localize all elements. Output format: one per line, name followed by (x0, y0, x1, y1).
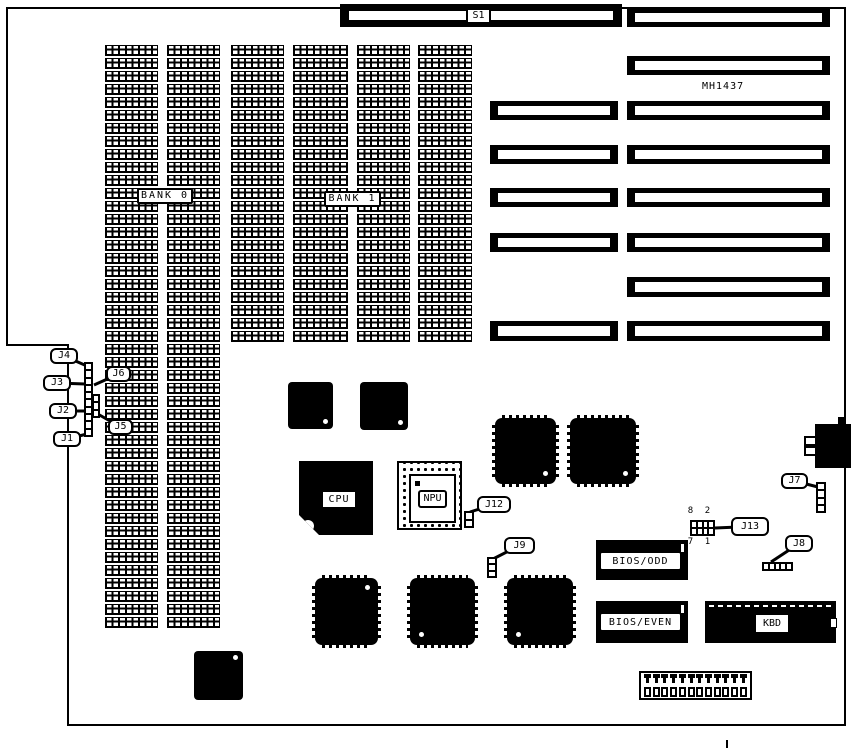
memory-dip-chip (418, 292, 472, 303)
jumper-cell (818, 484, 824, 489)
memory-dip-chip (167, 448, 220, 459)
keyboard-din-connector (815, 424, 851, 468)
jumper-cell (86, 364, 91, 369)
memory-dip-chip (357, 305, 410, 316)
memory-dip-chip (105, 500, 158, 511)
memory-dip-chip (357, 214, 410, 225)
callout-j2: J2 (49, 403, 77, 419)
memory-dip-chip (418, 162, 472, 173)
memory-dip-chip (167, 539, 220, 550)
memory-dip-chip (293, 162, 348, 173)
memory-dip-chip (167, 266, 220, 277)
memory-dip-chip (231, 227, 284, 238)
jumper-block-left-side (92, 394, 100, 418)
memory-dip-chip (231, 279, 284, 290)
memory-dip-chip (357, 123, 410, 134)
memory-dip-chip (418, 253, 472, 264)
connector-socket (644, 687, 651, 697)
pin1-dot (398, 420, 403, 425)
kbd-label: KBD (754, 613, 790, 634)
connector-pin (679, 674, 686, 686)
kbd-dashed-line (709, 605, 832, 607)
j13-cell (692, 522, 696, 527)
memory-dip-chip (167, 474, 220, 485)
pin1-mark (415, 481, 420, 486)
jumper-cell (86, 430, 91, 435)
memory-dip-chip (231, 188, 284, 199)
pin1-dot (419, 632, 424, 637)
memory-dip-chip (357, 318, 410, 329)
memory-dip-chip (167, 71, 220, 82)
connector-pin (670, 674, 677, 686)
expansion-slot-11 (627, 233, 830, 252)
pin1-dot (233, 655, 238, 660)
bank-label-1: BANK 1 (324, 191, 381, 207)
jumper-cell (489, 572, 495, 576)
memory-dip-chip (167, 292, 220, 303)
memory-dip-chip (418, 136, 472, 147)
connector-pin (705, 674, 712, 686)
memory-dip-chip (293, 331, 348, 342)
memory-dip-chip (105, 318, 158, 329)
jumper-j9 (487, 557, 497, 578)
callout-j1: J1 (53, 431, 81, 447)
memory-dip-chip (418, 149, 472, 160)
memory-dip-chip (357, 240, 410, 251)
memory-dip-chip (293, 292, 348, 303)
memory-dip-chip (293, 58, 348, 69)
jumper-j7 (816, 482, 826, 513)
din-pin-box (804, 446, 817, 456)
callout-j3: J3 (43, 375, 71, 391)
rom-label: BIOS/EVEN (601, 614, 680, 630)
memory-dip-chip (231, 71, 284, 82)
memory-dip-chip (418, 71, 472, 82)
memory-dip-chip (105, 448, 158, 459)
memory-dip-chip (105, 396, 158, 407)
memory-dip-chip (167, 591, 220, 602)
memory-dip-chip (105, 552, 158, 563)
connector-pin (661, 674, 668, 686)
expansion-slot-6 (627, 8, 830, 27)
memory-dip-chip (231, 305, 284, 316)
j13-pin1-label: 1 (703, 538, 712, 547)
memory-dip-chip (105, 539, 158, 550)
qfp-chip-1 (495, 418, 556, 484)
pin1-dot (543, 471, 548, 476)
jumper-cell (781, 564, 785, 569)
power-connector (639, 671, 752, 700)
memory-dip-chip (293, 149, 348, 160)
memory-dip-chip (231, 214, 284, 225)
memory-dip-chip (418, 97, 472, 108)
memory-dip-chip (357, 58, 410, 69)
memory-dip-chip (167, 318, 220, 329)
memory-dip-chip (293, 123, 348, 134)
j13-cell (704, 522, 708, 527)
memory-dip-chip (105, 591, 158, 602)
jumper-cell (787, 564, 791, 569)
memory-dip-chip (105, 383, 158, 394)
memory-dip-chip (167, 136, 220, 147)
memory-dip-chip (231, 318, 284, 329)
expansion-slot-4 (490, 233, 618, 252)
s1-label: S1 (466, 8, 491, 24)
memory-dip-chip (418, 279, 472, 290)
memory-dip-chip (105, 279, 158, 290)
memory-dip-chip (293, 253, 348, 264)
memory-dip-chip (167, 500, 220, 511)
memory-dip-chip (105, 461, 158, 472)
connector-socket (722, 687, 729, 697)
memory-dip-chip (105, 149, 158, 160)
square-chip-3 (194, 651, 243, 700)
bank-label-0: BANK 0 (137, 188, 193, 204)
expansion-slot-3 (490, 188, 618, 207)
memory-dip-chip (105, 266, 158, 277)
memory-dip-chip (167, 58, 220, 69)
memory-dip-chip (167, 331, 220, 342)
memory-column-2 (167, 45, 220, 628)
memory-dip-chip (105, 305, 158, 316)
jumper-cell (86, 386, 91, 391)
memory-dip-chip (105, 136, 158, 147)
connector-pin (644, 674, 651, 686)
kbd-controller: KBD (705, 601, 836, 643)
callout-j8: J8 (785, 535, 813, 552)
memory-dip-chip (167, 110, 220, 121)
npu-label: NPU (418, 490, 446, 508)
memory-dip-chip (167, 461, 220, 472)
memory-dip-chip (418, 175, 472, 186)
jumper-cell (489, 565, 495, 569)
jumper-cell (86, 393, 91, 398)
memory-dip-chip (293, 175, 348, 186)
memory-dip-chip (105, 292, 158, 303)
connector-socket (696, 687, 703, 697)
callout-j9: J9 (504, 537, 535, 554)
memory-column-1 (105, 45, 158, 628)
connector-socket (661, 687, 668, 697)
memory-dip-chip (105, 253, 158, 264)
memory-dip-chip (105, 617, 158, 628)
expansion-slot-13 (627, 321, 830, 341)
memory-dip-chip (357, 136, 410, 147)
connector-pin (688, 674, 695, 686)
j13-cell (709, 522, 713, 527)
jumper-cell (94, 411, 98, 416)
motherboard-diagram: S1 MH1437 8 2 7 1 BANK 0BANK 1CPUNPUBIOS… (0, 0, 851, 753)
jumper-cell (466, 521, 472, 527)
memory-dip-chip (167, 396, 220, 407)
connector-socket (670, 687, 677, 697)
memory-dip-chip (231, 136, 284, 147)
jumper-cell (94, 396, 98, 401)
j13-cell (698, 529, 702, 534)
j13-pin7-label: 7 (686, 538, 695, 547)
power-connector-pins (644, 674, 747, 686)
memory-column-6 (418, 45, 472, 342)
connector-socket (705, 687, 712, 697)
expansion-slot-10 (627, 188, 830, 207)
memory-dip-chip (167, 227, 220, 238)
memory-dip-chip (167, 409, 220, 420)
memory-dip-chip (418, 331, 472, 342)
jumper-j12 (464, 511, 474, 528)
connector-pin (696, 674, 703, 686)
memory-dip-chip (105, 435, 158, 446)
memory-dip-chip (418, 84, 472, 95)
memory-dip-chip (105, 487, 158, 498)
callout-j6: J6 (106, 366, 131, 382)
memory-dip-chip (167, 84, 220, 95)
memory-dip-chip (231, 110, 284, 121)
callout-j7: J7 (781, 473, 808, 489)
memory-dip-chip (231, 266, 284, 277)
pin1-notch (681, 544, 684, 552)
connector-socket (679, 687, 686, 697)
memory-dip-chip (167, 279, 220, 290)
memory-dip-chip (357, 253, 410, 264)
memory-dip-chip (357, 331, 410, 342)
memory-dip-chip (167, 578, 220, 589)
memory-dip-chip (167, 97, 220, 108)
memory-dip-chip (167, 45, 220, 56)
connector-socket (653, 687, 660, 697)
j13-pin2-label: 2 (703, 507, 712, 516)
memory-dip-chip (231, 123, 284, 134)
connector-socket (714, 687, 721, 697)
memory-dip-chip (357, 292, 410, 303)
j13-header-block (690, 520, 715, 536)
memory-dip-chip (357, 71, 410, 82)
memory-dip-chip (231, 292, 284, 303)
memory-dip-chip (418, 201, 472, 212)
memory-dip-chip (167, 123, 220, 134)
memory-dip-chip (357, 45, 410, 56)
page-tick-mark (726, 740, 728, 748)
memory-dip-chip (167, 383, 220, 394)
memory-dip-chip (357, 84, 410, 95)
memory-dip-chip (231, 201, 284, 212)
memory-dip-chip (231, 175, 284, 186)
din-pin-box (804, 436, 817, 446)
memory-dip-chip (357, 266, 410, 277)
qfp-chip-3 (315, 578, 378, 645)
memory-dip-chip (231, 149, 284, 160)
memory-dip-chip (105, 97, 158, 108)
memory-dip-chip (418, 58, 472, 69)
callout-j5: J5 (108, 419, 133, 435)
memory-dip-chip (357, 279, 410, 290)
jumper-cell (86, 400, 91, 405)
npu: NPU (397, 461, 462, 530)
memory-dip-chip (293, 266, 348, 277)
memory-dip-chip (418, 305, 472, 316)
jumper-cell (818, 506, 824, 511)
pin1-dot (516, 632, 521, 637)
jumper-cell (770, 564, 774, 569)
memory-dip-chip (231, 58, 284, 69)
memory-dip-chip (105, 513, 158, 524)
memory-dip-chip (167, 175, 220, 186)
memory-dip-chip (418, 214, 472, 225)
pin1-notch (830, 618, 837, 628)
connector-pin (722, 674, 729, 686)
expansion-slot-5 (490, 321, 618, 341)
memory-dip-chip (167, 240, 220, 251)
qfp-chip-4 (410, 578, 475, 645)
bios-odd-rom: BIOS/ODD (596, 540, 688, 580)
memory-dip-chip (167, 357, 220, 368)
qfp-chip-2 (570, 418, 636, 484)
j13-cell (692, 529, 696, 534)
cpu: CPU (299, 461, 373, 535)
memory-dip-chip (105, 58, 158, 69)
callout-j13: J13 (731, 517, 769, 536)
memory-dip-chip (167, 344, 220, 355)
memory-dip-chip (231, 162, 284, 173)
memory-dip-chip (418, 188, 472, 199)
connector-pin (714, 674, 721, 686)
pin1-circle (302, 520, 314, 532)
memory-dip-chip (167, 513, 220, 524)
jumper-cell (86, 415, 91, 420)
memory-dip-chip (357, 227, 410, 238)
expansion-slot-7 (627, 56, 830, 75)
memory-dip-chip (293, 279, 348, 290)
pin1-dot (365, 585, 370, 590)
connector-socket (740, 687, 747, 697)
connector-pin (653, 674, 660, 686)
jumper-cell (86, 379, 91, 384)
memory-dip-chip (167, 526, 220, 537)
jumper-cell (86, 408, 91, 413)
power-connector-sockets (644, 687, 747, 697)
memory-dip-chip (357, 149, 410, 160)
memory-dip-chip (167, 253, 220, 264)
memory-dip-chip (231, 240, 284, 251)
callout-j12: J12 (477, 496, 511, 513)
memory-dip-chip (357, 110, 410, 121)
memory-dip-chip (167, 162, 220, 173)
memory-dip-chip (357, 97, 410, 108)
jumper-cell (776, 564, 780, 569)
j13-pin8-label: 8 (686, 507, 695, 516)
memory-dip-chip (293, 318, 348, 329)
square-chip-2 (360, 382, 408, 430)
expansion-slot-12 (627, 277, 830, 297)
memory-dip-chip (105, 214, 158, 225)
jumper-cell (818, 491, 824, 496)
expansion-slot-8 (627, 101, 830, 120)
memory-dip-chip (293, 71, 348, 82)
callout-j4: J4 (50, 348, 78, 364)
cpu-label: CPU (321, 490, 357, 509)
memory-dip-chip (418, 227, 472, 238)
memory-dip-chip (231, 84, 284, 95)
memory-dip-chip (105, 526, 158, 537)
memory-dip-chip (418, 123, 472, 134)
memory-dip-chip (293, 45, 348, 56)
npu-socket-inner: NPU (409, 474, 456, 523)
memory-dip-chip (167, 565, 220, 576)
memory-dip-chip (293, 227, 348, 238)
memory-dip-chip (418, 110, 472, 121)
memory-dip-chip (167, 435, 220, 446)
memory-dip-chip (105, 162, 158, 173)
pin1-dot (323, 419, 328, 424)
square-chip-1 (288, 382, 333, 429)
memory-dip-chip (167, 422, 220, 433)
memory-dip-chip (418, 45, 472, 56)
memory-dip-chip (105, 110, 158, 121)
memory-dip-chip (293, 305, 348, 316)
memory-dip-chip (105, 84, 158, 95)
memory-dip-chip (167, 617, 220, 628)
expansion-slot-2 (490, 145, 618, 164)
connector-socket (731, 687, 738, 697)
jumper-cell (466, 513, 472, 519)
memory-dip-chip (418, 240, 472, 251)
qfp-chip-5 (507, 578, 573, 645)
j13-cell (704, 529, 708, 534)
connector-socket (688, 687, 695, 697)
memory-dip-chip (357, 175, 410, 186)
din-connector-tab (838, 417, 846, 425)
memory-dip-chip (167, 149, 220, 160)
jumper-j8 (762, 562, 793, 571)
memory-dip-chip (105, 71, 158, 82)
memory-dip-chip (105, 344, 158, 355)
memory-dip-chip (231, 97, 284, 108)
j13-cell (698, 522, 702, 527)
memory-dip-chip (231, 331, 284, 342)
memory-dip-chip (167, 305, 220, 316)
jumper-cell (818, 499, 824, 504)
memory-dip-chip (231, 253, 284, 264)
memory-dip-chip (105, 175, 158, 186)
memory-dip-chip (293, 97, 348, 108)
memory-dip-chip (105, 45, 158, 56)
memory-dip-chip (105, 240, 158, 251)
memory-dip-chip (105, 331, 158, 342)
bios-even-rom: BIOS/EVEN (596, 601, 688, 643)
memory-column-3 (231, 45, 284, 342)
memory-dip-chip (105, 123, 158, 134)
memory-dip-chip (105, 578, 158, 589)
pin1-notch (681, 605, 684, 613)
memory-dip-chip (167, 604, 220, 615)
memory-dip-chip (293, 110, 348, 121)
rom-label: BIOS/ODD (601, 553, 680, 569)
jumper-cell (764, 564, 768, 569)
part-number-label: MH1437 (702, 81, 744, 92)
connector-pin (731, 674, 738, 686)
memory-dip-chip (418, 266, 472, 277)
memory-dip-chip (231, 45, 284, 56)
expansion-slot-9 (627, 145, 830, 164)
connector-pin (740, 674, 747, 686)
memory-dip-chip (105, 227, 158, 238)
memory-dip-chip (105, 474, 158, 485)
memory-dip-chip (293, 214, 348, 225)
jumper-cell (86, 371, 91, 376)
pin1-dot (623, 471, 628, 476)
expansion-slot-1 (490, 101, 618, 120)
jumper-cell (489, 559, 495, 563)
memory-dip-chip (167, 214, 220, 225)
